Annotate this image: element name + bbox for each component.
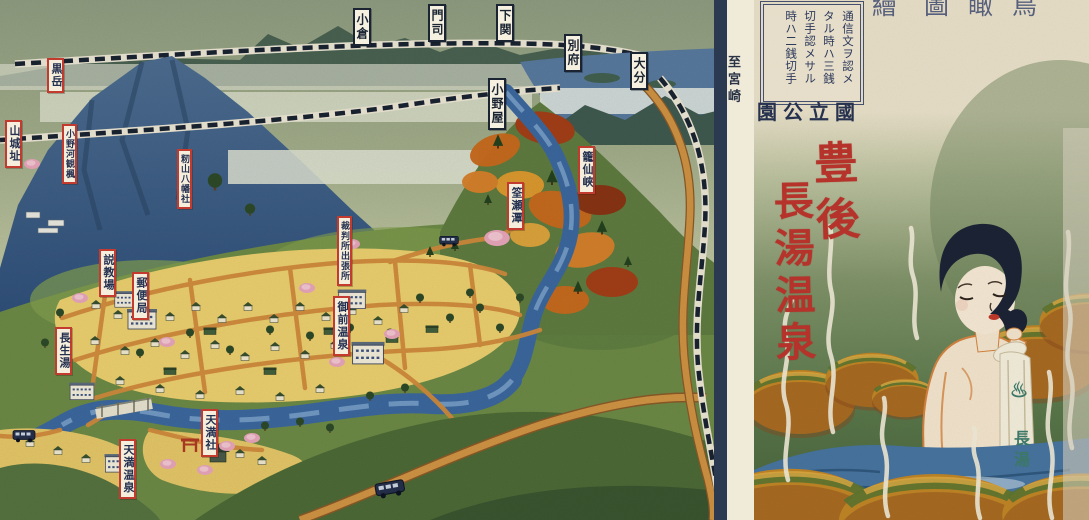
- place-label-castle-ruins: 山城址: [5, 120, 22, 168]
- cutoff-title-char-e: 繪: [872, 0, 897, 22]
- station-label-shimonoseki: 下関: [496, 4, 514, 42]
- place-label-court-branch: 裁判所出張所: [337, 216, 352, 286]
- place-label-ukese-pool: 筌瀬潭: [507, 182, 524, 230]
- place-label-rosenkyo-gorge: 籠仙峡: [578, 146, 595, 194]
- postal-note-column: 切手認メサル: [799, 10, 818, 96]
- place-label-tenman-shrine: 天満社: [201, 409, 218, 457]
- direction-label-to-miyazaki: 至宮崎: [724, 55, 743, 106]
- place-label-maple-viewing: 小野河観楓: [62, 124, 77, 184]
- place-label-choseiyu-bath: 長生湯: [55, 327, 72, 375]
- station-label-oita: 大分: [630, 52, 648, 90]
- postal-note-column: 時ハ二銭切手: [780, 10, 799, 96]
- towel-inscription: ♨ 長湯: [1006, 378, 1031, 472]
- towel-inscription-text: 長湯: [1011, 430, 1028, 472]
- place-label-kurodake: 黒岳: [47, 58, 64, 93]
- place-label-post-office: 郵便局: [132, 272, 149, 320]
- cutoff-title-char-kan: 瞰: [968, 0, 993, 22]
- cutoff-title-char-zu: 圖: [924, 0, 949, 22]
- postcard-artwork: [0, 0, 1089, 520]
- postal-rate-note-box: 通信文ヲ認メ タル時ハ三銭 切手認メサル 時ハ二銭切手: [763, 4, 861, 102]
- place-label-preaching-hall: 説教場: [99, 249, 116, 297]
- station-label-beppu: 別府: [564, 34, 582, 72]
- station-label-kokura: 小倉: [353, 8, 371, 46]
- postal-note-column: 通信文ヲ認メ: [837, 10, 856, 96]
- cutoff-title-char-cho: 鳥: [1012, 0, 1037, 22]
- place-label-gozen-onsen: 御前温泉: [333, 296, 350, 356]
- title-calligraphy-nagayu-onsen: 長湯温泉: [760, 180, 821, 369]
- hot-spring-icon: ♨: [1007, 378, 1031, 408]
- place-label-hachiman-shrine: 籾山八幡社: [177, 149, 192, 209]
- station-label-onoya: 小野屋: [488, 78, 506, 130]
- postal-note-column: タル時ハ三銭: [818, 10, 837, 96]
- postcard-birdseye-map: 小倉 門司 下関 別府 大分 小野屋 至宮崎 黒岳 山城址 小野河観楓 籾山八幡…: [0, 0, 1089, 520]
- place-label-tenman-onsen: 天満温泉: [119, 439, 136, 499]
- national-park-seal: 園公立國: [757, 96, 861, 125]
- station-label-moji: 門司: [428, 4, 446, 42]
